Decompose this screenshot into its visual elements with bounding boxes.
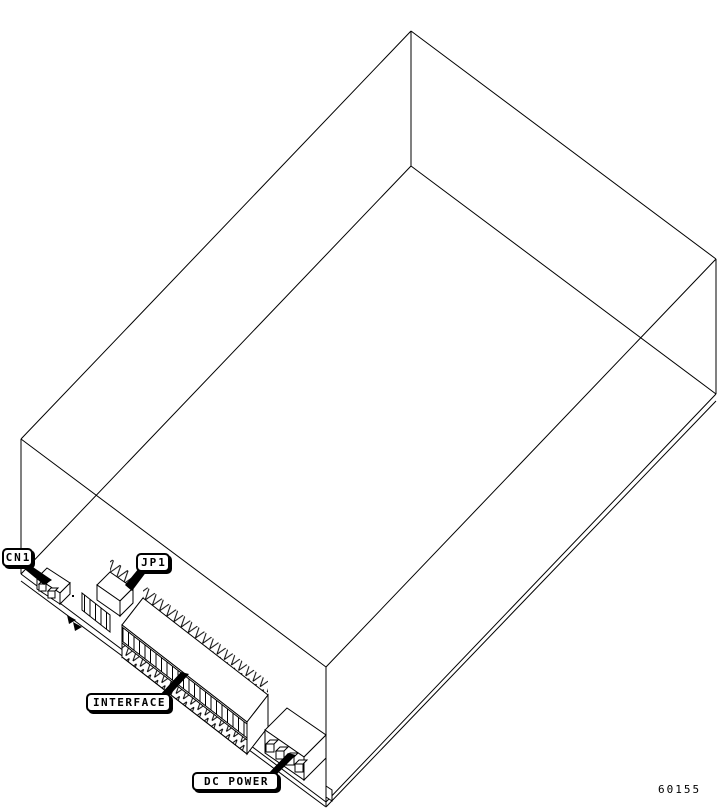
chassis-vertical-edges: [21, 31, 716, 806]
interface-edge-connector: [122, 584, 268, 754]
callout-interface-label: INTERFACE: [86, 693, 171, 712]
callout-jp1-label: JP1: [136, 553, 170, 572]
cn1-pin-2: [48, 591, 55, 598]
callout-dc-power-label: DC POWER: [192, 772, 279, 791]
dc-power-pin-2: [276, 751, 284, 759]
strip-mark-upper: [67, 615, 76, 624]
cn1-pin-1: [39, 584, 46, 591]
dc-power-pin-1: [266, 744, 274, 752]
strip-corner-foot: [326, 786, 332, 801]
chassis-wireframe: [21, 31, 716, 806]
hardware-diagram: CN1 JP1 INTERFACE DC POWER 60155: [0, 0, 719, 808]
strip-dot: [72, 595, 74, 597]
figure-code: 60155: [658, 783, 701, 796]
callout-cn1-label: CN1: [2, 548, 33, 567]
drive-isometric-drawing: [0, 0, 719, 808]
dc-power-pin-4: [295, 764, 303, 772]
